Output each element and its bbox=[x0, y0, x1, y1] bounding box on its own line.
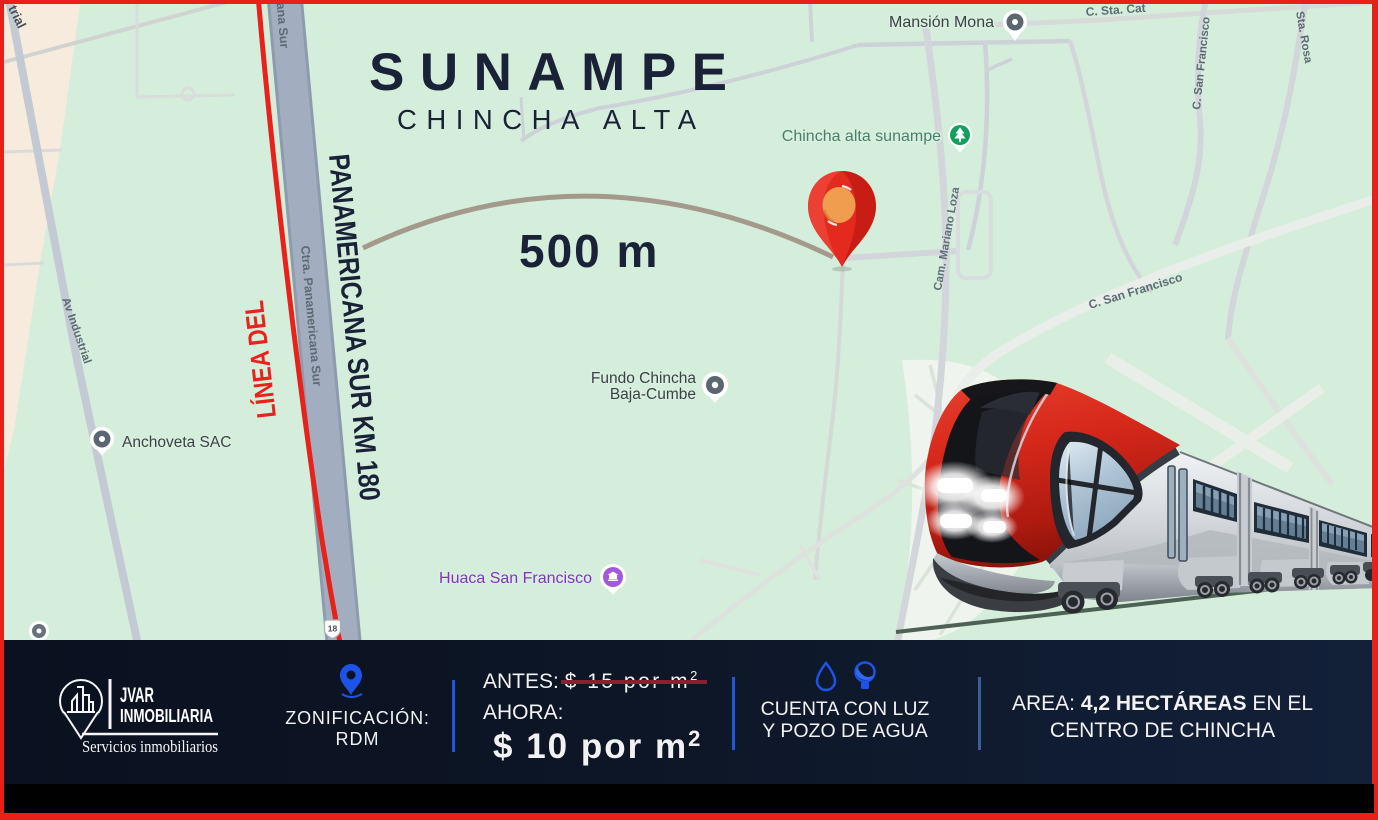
svg-text:JVAR: JVAR bbox=[120, 684, 154, 707]
svg-text:INMOBILIARIA: INMOBILIARIA bbox=[120, 705, 213, 726]
svg-text:Anchoveta SAC: Anchoveta SAC bbox=[122, 434, 231, 451]
svg-text:Chincha alta sunampe: Chincha alta sunampe bbox=[782, 128, 941, 145]
svg-text:LÍNEA DEL: LÍNEA DEL bbox=[238, 299, 282, 420]
svg-text:Fundo Chincha: Fundo Chincha bbox=[591, 370, 697, 387]
svg-text:Mansión Mona: Mansión Mona bbox=[889, 14, 994, 31]
svg-text:Huaca San Francisco: Huaca San Francisco bbox=[439, 570, 592, 587]
svg-text:Servicios inmobiliarios: Servicios inmobiliarios bbox=[82, 737, 218, 756]
svg-text:18: 18 bbox=[328, 624, 338, 634]
svg-text:C. San Francisco: C. San Francisco bbox=[1191, 16, 1213, 110]
svg-text:Baja-Cumbe: Baja-Cumbe bbox=[610, 386, 696, 403]
svg-text:C. San Francisco: C. San Francisco bbox=[1087, 270, 1184, 312]
